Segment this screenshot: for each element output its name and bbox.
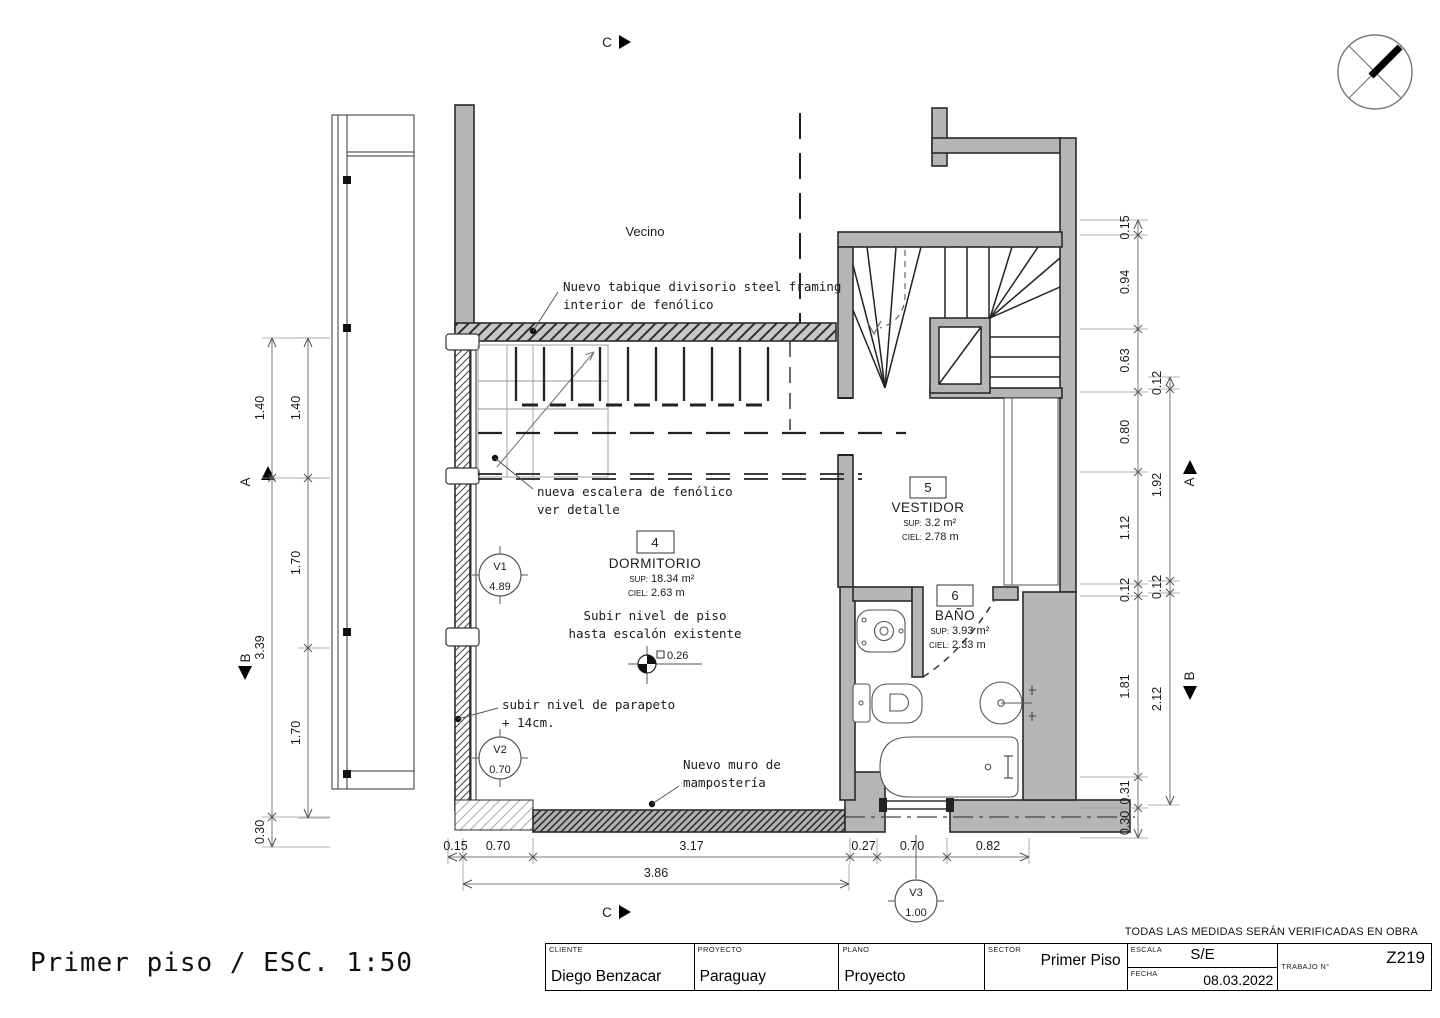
- annotation-tabique: Nuevo tabique divisorio steel framing: [563, 279, 841, 294]
- north-arrow-icon: [1338, 35, 1412, 109]
- dim-line: [1020, 857, 1029, 861]
- section-marker-b-left: B: [238, 653, 253, 680]
- window-id: V3: [909, 887, 922, 899]
- dim-line: [1020, 853, 1029, 857]
- dim-label: 0.63: [1118, 348, 1132, 372]
- dim-label: 2.12: [1150, 687, 1164, 711]
- annotation-muro: Nuevo muro de: [683, 757, 781, 772]
- window-id: V2: [493, 744, 506, 756]
- svg-text:5: 5: [924, 480, 931, 495]
- svg-text:6: 6: [951, 588, 958, 603]
- dim-label: 1.92: [1150, 473, 1164, 497]
- window-id: V1: [493, 561, 506, 573]
- svg-text:SUP:: SUP:: [903, 519, 922, 528]
- titleblock-sector: SECTOR Primer Piso: [984, 944, 1127, 990]
- annotation-subir-piso-2: hasta escalón existente: [568, 626, 741, 641]
- dim-label: 1.12: [1118, 516, 1132, 540]
- sector-label: SECTOR: [988, 945, 1021, 954]
- drawing-title: Primer piso / ESC. 1:50: [30, 948, 413, 978]
- dim-line: [1138, 829, 1142, 838]
- titleblock-proyecto: PROYECTO Paraguay: [694, 944, 839, 990]
- section-marker-c-top: C: [602, 35, 631, 50]
- title-block: CLIENTE Diego Benzacar PROYECTO Paraguay…: [545, 943, 1432, 991]
- room-label-dormitorio: 4 DORMITORIO SUP: 18.34 m² CIEL: 2.63 m: [609, 531, 702, 599]
- bidet-icon: [857, 610, 905, 652]
- dim-label: 0.94: [1118, 270, 1132, 294]
- cliente-label: CLIENTE: [549, 945, 583, 954]
- dim-label: 0.30: [1118, 811, 1132, 835]
- dim-line: [1170, 377, 1174, 386]
- escala-value: S/E: [1128, 946, 1278, 963]
- neighbor-label: Vecino: [625, 224, 664, 239]
- cliente-value: Diego Benzacar: [551, 968, 661, 986]
- svg-text:A: A: [1182, 477, 1197, 486]
- proyecto-value: Paraguay: [700, 968, 766, 986]
- dim-label: 1.70: [289, 721, 303, 745]
- section-marker-b-right: B: [1182, 671, 1197, 700]
- svg-text:SUP:: SUP:: [629, 575, 648, 584]
- sector-value: Primer Piso: [1041, 952, 1121, 970]
- dim-line: [1134, 220, 1138, 229]
- svg-text:BAÑO: BAÑO: [935, 608, 975, 623]
- dim-label: 0.31: [1118, 780, 1132, 804]
- svg-text:C: C: [602, 35, 612, 50]
- dim-line: [448, 853, 457, 857]
- dim-line: [840, 884, 849, 888]
- svg-text:18.34 m²: 18.34 m²: [651, 573, 695, 585]
- dim-line: [272, 838, 276, 847]
- stair-walkline: [868, 250, 905, 334]
- svg-text:2.33 m: 2.33 m: [952, 639, 986, 651]
- dim-label: 0.82: [976, 839, 1000, 853]
- annotation-tabique-2: interior de fenólico: [563, 297, 714, 312]
- dim-label: 0.15: [1118, 215, 1132, 239]
- fecha-label: FECHA: [1131, 969, 1158, 978]
- dim-line: [308, 338, 312, 347]
- svg-text:CIEL:: CIEL:: [929, 641, 949, 650]
- wall-opening-edges: [838, 398, 853, 455]
- dim-line: [272, 338, 276, 347]
- annotation-escalera: nueva escalera de fenólico: [537, 484, 733, 499]
- dim-label: 0.70: [486, 839, 510, 853]
- svg-text:CIEL:: CIEL:: [628, 589, 648, 598]
- dim-label: 1.40: [289, 396, 303, 420]
- dim-label: 0.70: [900, 839, 924, 853]
- dim-line: [268, 838, 272, 847]
- section-marker-a-right: A: [1182, 460, 1197, 487]
- level-marker: 0.26: [628, 646, 702, 684]
- plan-drawing: 0.26 V1 4.89 V2 0.70 V3 1.00 C C: [0, 0, 1440, 1018]
- dim-line: [448, 857, 457, 861]
- dim-line: [1170, 796, 1174, 805]
- window-value: 0.70: [489, 764, 510, 776]
- dim-label: 3.17: [679, 839, 703, 853]
- titleblock-trabajo: TRABAJO N° Z219: [1277, 944, 1431, 990]
- dim-label: 1.81: [1118, 674, 1132, 698]
- titleblock-plano: PLANO Proyecto: [838, 944, 984, 990]
- trabajo-label: TRABAJO N°: [1281, 962, 1329, 971]
- dim-label: 1.70: [289, 551, 303, 575]
- dim-line: [463, 884, 472, 888]
- dim-line: [840, 880, 849, 884]
- room-label-bano: 6 BAÑO SUP: 3.93 m² CIEL: 2.33 m: [929, 585, 990, 651]
- svg-text:3.2 m²: 3.2 m²: [925, 517, 957, 529]
- trabajo-value: Z219: [1386, 948, 1425, 968]
- floor-plan-sheet: 0.26 V1 4.89 V2 0.70 V3 1.00 C C: [0, 0, 1440, 1018]
- neighbor-structure: [332, 115, 414, 789]
- svg-text:B: B: [1182, 671, 1197, 680]
- dim-line: [268, 338, 272, 347]
- fecha-value: 08.03.2022: [1203, 972, 1273, 988]
- dim-label: 0.27: [851, 839, 875, 853]
- dim-label: 0.12: [1150, 575, 1164, 599]
- dim-label: 0.80: [1118, 420, 1132, 444]
- dim-line: [304, 338, 308, 347]
- window-v3: [879, 798, 954, 812]
- window-marker-v2: V2 0.70: [472, 729, 528, 787]
- annotation-parapeto-2: + 14cm.: [502, 715, 555, 730]
- dim-label: 0.30: [253, 820, 267, 844]
- verification-note: TODAS LAS MEDIDAS SERÁN VERIFICADAS EN O…: [1125, 926, 1418, 938]
- proyecto-label: PROYECTO: [698, 945, 742, 954]
- svg-text:C: C: [602, 905, 612, 920]
- svg-text:2.63 m: 2.63 m: [651, 587, 685, 599]
- titleblock-escala-fecha: ESCALA S/E FECHA 08.03.2022: [1127, 944, 1278, 990]
- window-value: 4.89: [489, 581, 510, 593]
- dim-label: 0.12: [1118, 578, 1132, 602]
- titleblock-cliente: CLIENTE Diego Benzacar: [546, 944, 694, 990]
- plano-value: Proyecto: [844, 968, 905, 986]
- titleblock-fecha: FECHA 08.03.2022: [1128, 967, 1278, 991]
- dim-line: [1138, 220, 1142, 229]
- svg-text:B: B: [238, 653, 253, 662]
- svg-text:4: 4: [651, 535, 658, 550]
- dim-line: [463, 880, 472, 884]
- closet: [1004, 398, 1058, 585]
- section-marker-a-left: A: [238, 466, 275, 487]
- window-value: 1.00: [905, 907, 926, 919]
- annotation-parapeto: subir nivel de parapeto: [502, 697, 675, 712]
- svg-text:DORMITORIO: DORMITORIO: [609, 556, 702, 571]
- svg-text:CIEL:: CIEL:: [902, 533, 922, 542]
- annotation-muro-2: mampostería: [683, 775, 766, 790]
- annotation-escalera-2: ver detalle: [537, 502, 620, 517]
- dim-label: 3.39: [253, 635, 267, 659]
- svg-text:SUP:: SUP:: [930, 627, 949, 636]
- room-label-vestidor: 5 VESTIDOR SUP: 3.2 m² CIEL: 2.78 m: [891, 477, 964, 543]
- section-marker-c-bottom: C: [602, 905, 631, 920]
- dim-label: 1.40: [253, 396, 267, 420]
- dim-label: 0.12: [1150, 371, 1164, 395]
- level-value: 0.26: [667, 650, 688, 662]
- annotation-subir-piso: Subir nivel de piso: [584, 608, 727, 623]
- titleblock-escala: ESCALA S/E: [1128, 944, 1278, 967]
- plano-label: PLANO: [842, 945, 869, 954]
- window-marker-v1: V1 4.89: [472, 546, 528, 604]
- svg-text:2.78 m: 2.78 m: [925, 531, 959, 543]
- dim-line: [1134, 829, 1138, 838]
- bathtub-icon: [880, 737, 1018, 797]
- dim-line: [1166, 377, 1170, 386]
- dim-label: 3.86: [644, 866, 668, 880]
- svg-text:3.93 m²: 3.93 m²: [952, 625, 990, 637]
- dim-label: 0.15: [443, 839, 467, 853]
- svg-text:VESTIDOR: VESTIDOR: [891, 500, 964, 515]
- svg-text:A: A: [238, 477, 253, 486]
- dim-line: [1166, 796, 1170, 805]
- toilet-icon: [853, 684, 922, 723]
